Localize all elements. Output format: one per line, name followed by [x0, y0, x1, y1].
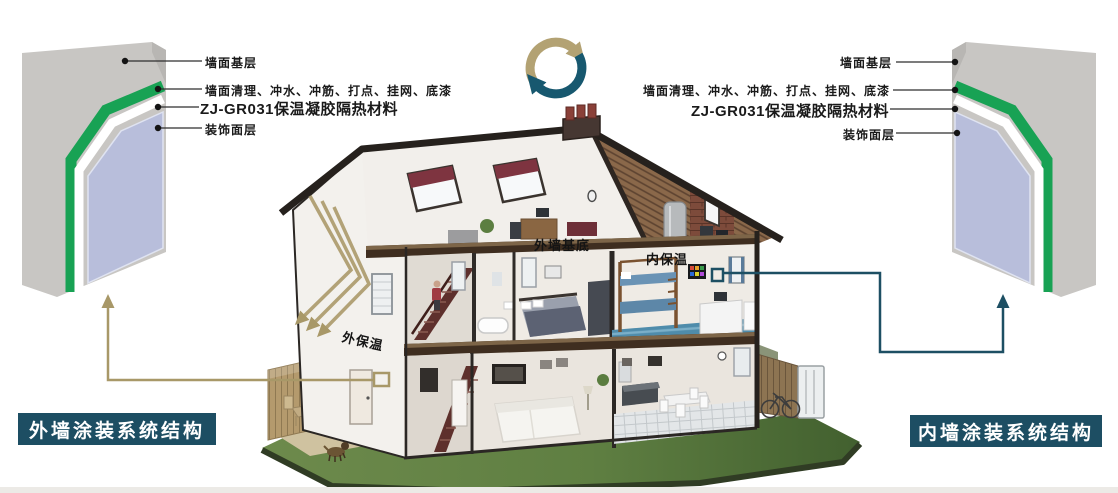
- label-decorative-layer-left: 装饰面层: [205, 121, 257, 138]
- chimney: [563, 104, 600, 140]
- hall-art: [420, 368, 438, 392]
- label-interior-insulation: 内保温: [646, 249, 688, 268]
- hall-door: [452, 380, 467, 426]
- sofa: [495, 397, 580, 442]
- colorful-art-frame: [688, 264, 706, 279]
- double-bed: [519, 294, 586, 337]
- skylight: [494, 159, 545, 202]
- kitchen-clock: [718, 352, 726, 360]
- right-fence: [757, 344, 824, 418]
- exterior-callout-marker: [374, 373, 389, 386]
- label-insulation-material-left: ZJ-GR031保温凝胶隔热材料: [200, 98, 398, 119]
- attic-bench: [567, 222, 597, 236]
- insulation-system-infographic: 墙面基层 墙面清理、冲水、冲筋、打点、挂网、底漆 ZJ-GR031保温凝胶隔热材…: [0, 0, 1118, 493]
- wall-layers-diagram-left: [22, 42, 166, 297]
- bathtub: [478, 318, 508, 333]
- wardrobe: [588, 280, 610, 336]
- kitchen-island: [622, 382, 660, 406]
- bathroom-mirror: [492, 272, 502, 286]
- interior-wall-connector-line: [723, 273, 1003, 352]
- kids-cabinet: [744, 302, 756, 330]
- wall-layers-diagram-right: [952, 42, 1096, 297]
- wall-window: [372, 274, 392, 314]
- sink: [504, 302, 513, 309]
- kids-desk: [700, 300, 742, 336]
- middle-floor: [406, 244, 757, 348]
- kitchen-window: [734, 348, 750, 376]
- bedroom-window: [522, 258, 536, 287]
- attic-monitor: [536, 208, 549, 217]
- wall-clock: [588, 191, 596, 202]
- garden-gate: [798, 366, 824, 418]
- wall-art: [545, 266, 561, 278]
- label-wall-prep-right: 墙面清理、冲水、冲筋、打点、挂网、底漆: [643, 82, 890, 99]
- kids-monitor: [714, 292, 727, 301]
- label-wall-base-right: 墙面基层: [840, 54, 892, 71]
- attic-chair: [510, 222, 521, 239]
- label-wall-base-left: 墙面基层: [205, 54, 257, 71]
- curtained-window: [729, 257, 744, 283]
- label-decorative-layer-right: 装饰面层: [843, 126, 895, 143]
- label-exterior-wall-base: 外墙基底: [534, 235, 590, 254]
- recycle-icon: [530, 42, 582, 94]
- label-wall-prep-left: 墙面清理、冲水、冲筋、打点、挂网、底漆: [205, 82, 452, 99]
- bottom-edge-strip: [0, 487, 1118, 493]
- bathroom-window: [452, 262, 465, 290]
- living-room-plant: [597, 374, 609, 386]
- exterior-system-title-box: 外墙涂装系统结构: [18, 413, 216, 445]
- label-insulation-material-right: ZJ-GR031保温凝胶隔热材料: [691, 100, 889, 121]
- attic-plant: [480, 219, 494, 233]
- skylight: [408, 166, 461, 211]
- interior-system-title-box: 内墙涂装系统结构: [910, 415, 1102, 447]
